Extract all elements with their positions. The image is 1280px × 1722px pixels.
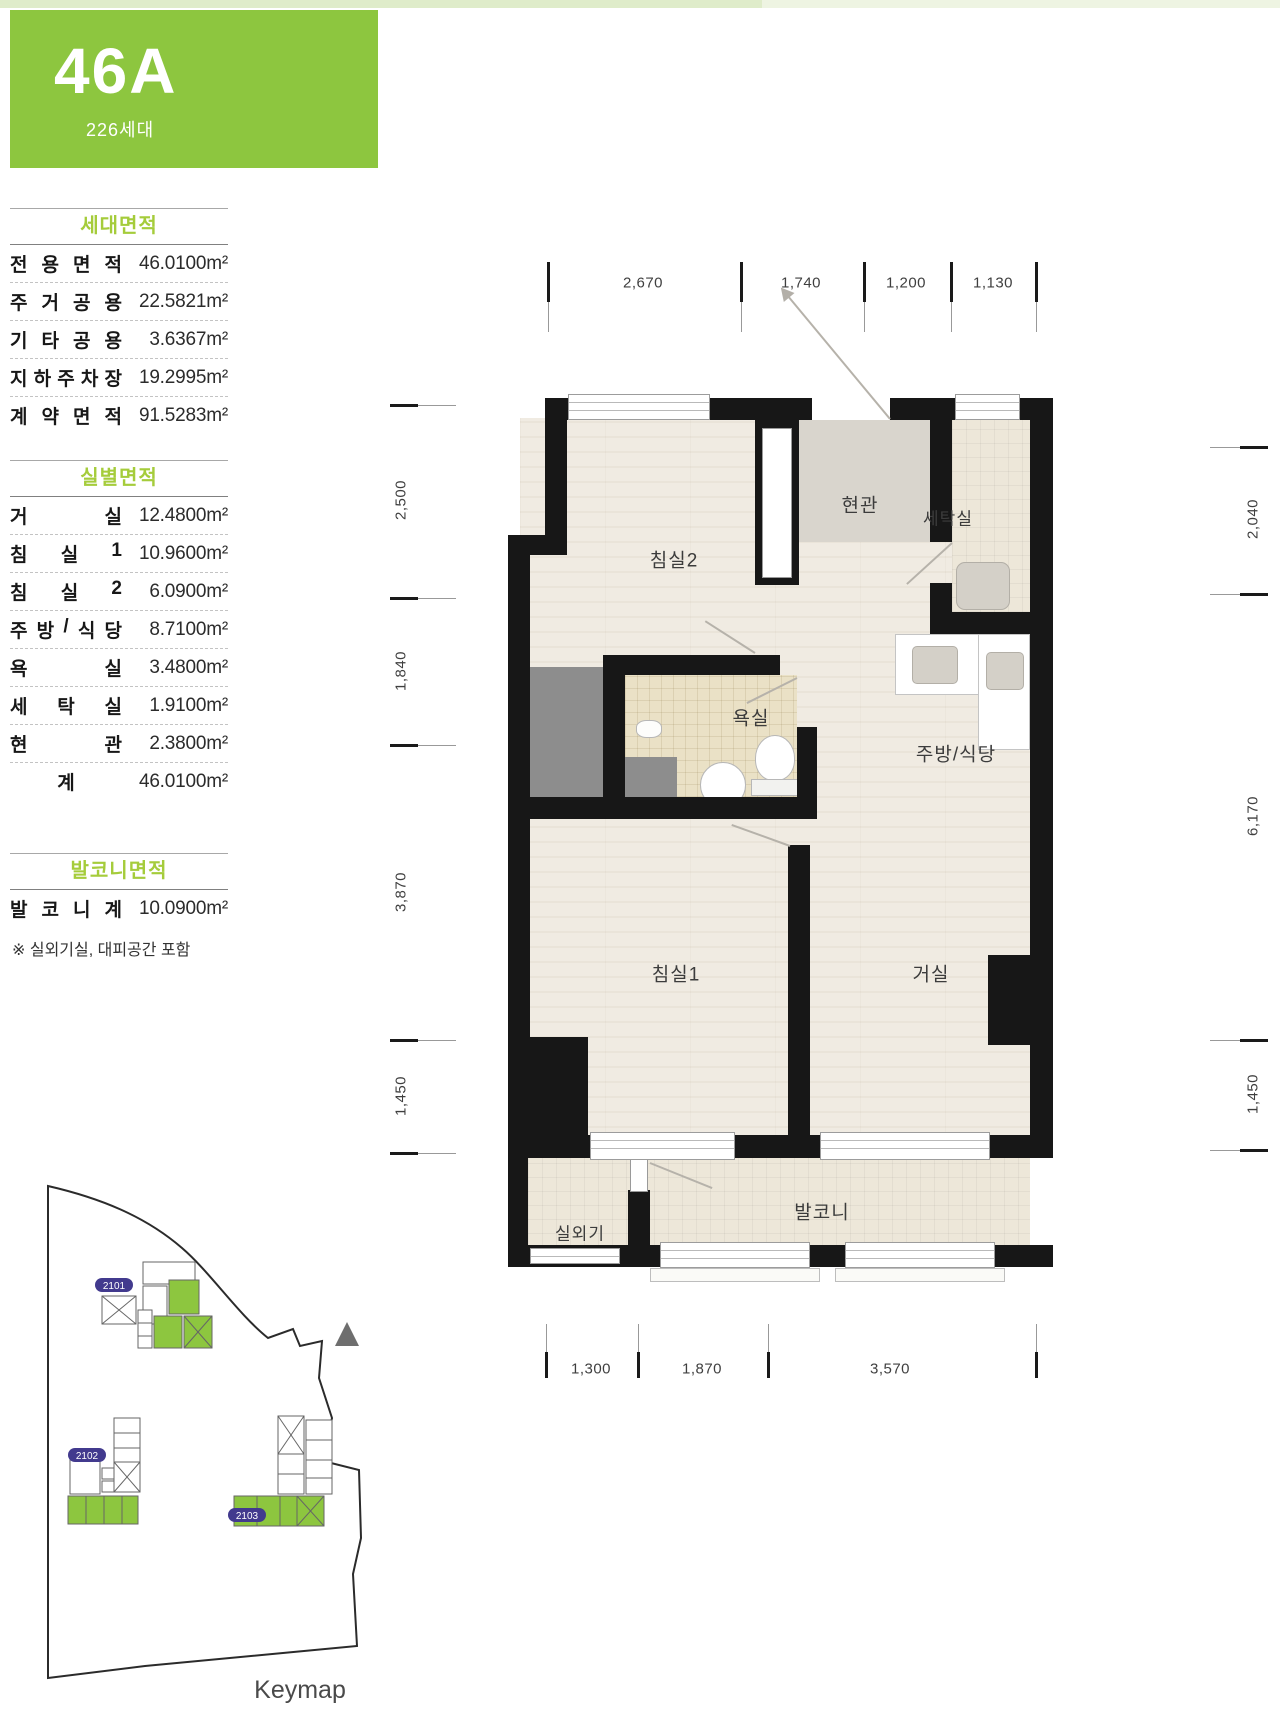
area-value: 46.0100m² [122, 771, 228, 793]
laundry-window [955, 394, 1020, 420]
keymap: 2101 2102 2103 Keymap [10, 1066, 390, 1716]
dimension-tick [637, 1352, 640, 1378]
dim-left-2: 1,840 [393, 651, 410, 691]
household-area-table: 세대면적 전용면적 46.0100m² 주거공용 22.5821m² 기타공용 … [10, 208, 228, 434]
area-value: 10.0900m² [122, 898, 228, 920]
wall-pier [988, 955, 1053, 1045]
unit-count: 226세대 [86, 116, 154, 142]
wall-pier [530, 1037, 588, 1137]
washer [956, 562, 1010, 610]
area-value: 91.5283m² [122, 405, 228, 427]
unit-type-code: 46A [54, 34, 177, 108]
area-label: 기타공용 [10, 326, 122, 353]
area-value: 46.0100m² [122, 253, 228, 275]
dimension-tick [390, 597, 418, 600]
shaft-area [520, 757, 677, 799]
area-label: 침실2 [10, 578, 122, 605]
page: 46A 226세대 세대면적 전용면적 46.0100m² 주거공용 22.58… [0, 0, 1280, 1722]
dim-right-2: 6,170 [1245, 796, 1262, 836]
table-row: 침실1 10.9600m² [10, 535, 228, 573]
area-note: ※ 실외기실, 대피공간 포함 [12, 936, 190, 960]
area-label: 주방/식당 [10, 616, 122, 643]
area-value: 1.9100m² [122, 695, 228, 717]
table-row: 계 46.0100m² [10, 763, 228, 800]
wall-bathroom [603, 655, 625, 800]
area-label: 주거공용 [10, 288, 122, 315]
area-value: 19.2995m² [122, 367, 228, 389]
area-label: 계 [10, 768, 122, 795]
unit-type-header: 46A 226세대 [10, 10, 378, 168]
badge-2101-label: 2101 [103, 1281, 126, 1292]
wall-room-divider [788, 845, 810, 1158]
area-label: 지하주차장 [10, 364, 122, 391]
dimension-tick [1240, 1149, 1268, 1152]
wall-bathroom [797, 727, 817, 797]
table-row: 주거공용 22.5821m² [10, 283, 228, 321]
area-value: 12.4800m² [122, 505, 228, 527]
building-2102 [68, 1418, 140, 1524]
wall [545, 398, 567, 555]
washbasin [636, 720, 662, 738]
entrance-floor [798, 420, 930, 542]
badge-2103-label: 2103 [236, 1511, 259, 1522]
area-value: 6.0900m² [122, 581, 228, 603]
badge-2102-label: 2102 [76, 1451, 99, 1462]
balcony-divider-door [630, 1158, 648, 1192]
area-value: 3.4800m² [122, 657, 228, 679]
room-label-kitchen: 주방/식당 [916, 740, 996, 767]
table-row: 발코니계 10.0900m² [10, 890, 228, 927]
dimension-tick [1240, 593, 1268, 596]
keymap-title: Keymap [254, 1676, 346, 1704]
table-row: 침실2 6.0900m² [10, 573, 228, 611]
room-label-living: 거실 [913, 960, 950, 987]
toilet-tank [751, 779, 799, 796]
area-value: 10.9600m² [122, 543, 228, 565]
dimension-tick [950, 262, 953, 302]
table-row: 계약면적 91.5283m² [10, 397, 228, 434]
table-row: 기타공용 3.6367m² [10, 321, 228, 359]
living-window [820, 1132, 990, 1160]
closet [762, 428, 792, 578]
building-2101 [102, 1262, 212, 1348]
dimension-tick [390, 744, 418, 747]
dimension-tick [390, 1152, 418, 1155]
area-label: 현관 [10, 730, 122, 757]
stove [986, 652, 1024, 690]
wall [508, 535, 530, 1158]
dimension-tick [547, 262, 550, 302]
table-title: 실별면적 [10, 461, 228, 497]
balcony-window-2 [845, 1242, 995, 1268]
area-label: 발코니계 [10, 895, 122, 922]
dim-left-4: 1,450 [393, 1076, 410, 1116]
table-row: 전용면적 46.0100m² [10, 245, 228, 283]
dim-top-1: 2,670 [623, 275, 663, 292]
table-row: 지하주차장 19.2995m² [10, 359, 228, 397]
ac-room-window [530, 1248, 620, 1264]
window-sill [650, 1268, 820, 1282]
area-label: 계약면적 [10, 402, 122, 429]
table-row: 거실 12.4800m² [10, 497, 228, 535]
table-row: 욕실 3.4800m² [10, 649, 228, 687]
dimension-tick [545, 1352, 548, 1378]
toilet [755, 735, 795, 781]
floor-plan: 침실2 현관 세탁실 욕실 주방/식당 침실1 거실 실외기 발코니 [500, 390, 1070, 1290]
top-accent-strip [0, 0, 762, 8]
table-title: 세대면적 [10, 209, 228, 245]
balcony-window-1 [660, 1242, 810, 1268]
dim-left-1: 2,500 [393, 480, 410, 520]
area-label: 욕실 [10, 654, 122, 681]
table-row: 주방/식당 8.7100m² [10, 611, 228, 649]
area-label: 세탁실 [10, 692, 122, 719]
dim-bottom-1: 1,300 [571, 1361, 611, 1378]
dim-top-3: 1,200 [886, 275, 926, 292]
area-value: 8.7100m² [122, 619, 228, 641]
room-label-laundry: 세탁실 [923, 505, 973, 530]
dimension-tick [390, 404, 418, 407]
room-label-bedroom1: 침실1 [652, 960, 701, 987]
north-arrow-icon [335, 1322, 359, 1346]
table-title: 발코니면적 [10, 854, 228, 890]
dim-top-4: 1,130 [973, 275, 1013, 292]
room-label-balcony: 발코니 [794, 1198, 849, 1225]
area-value: 2.3800m² [122, 733, 228, 755]
room-area-table: 실별면적 거실 12.4800m² 침실1 10.9600m² 침실2 6.09… [10, 460, 228, 800]
dimension-tick [767, 1352, 770, 1378]
area-value: 3.6367m² [122, 329, 228, 351]
dim-bottom-2: 1,870 [682, 1361, 722, 1378]
wall-balcony-divider [628, 1190, 650, 1248]
room-label-entrance: 현관 [842, 491, 879, 518]
dim-left-3: 3,870 [393, 872, 410, 912]
dimension-tick [863, 262, 866, 302]
room-label-ac-unit: 실외기 [555, 1220, 605, 1245]
dim-right-3: 1,450 [1245, 1074, 1262, 1114]
balcony-area-table: 발코니면적 발코니계 10.0900m² [10, 853, 228, 927]
table-row: 현관 2.3800m² [10, 725, 228, 763]
kitchen-sink [912, 646, 958, 684]
dimension-tick [740, 262, 743, 302]
wall-bathroom [508, 797, 817, 819]
area-value: 22.5821m² [122, 291, 228, 313]
bedroom1-window [590, 1132, 735, 1160]
area-label: 침실1 [10, 540, 122, 567]
top-accent-strip-light [762, 0, 1280, 8]
room-label-bedroom2: 침실2 [650, 546, 699, 573]
dimension-tick [390, 1039, 418, 1042]
dimension-tick [1035, 262, 1038, 302]
wall [945, 612, 1030, 634]
dimension-tick [1240, 446, 1268, 449]
window-sill [835, 1268, 1005, 1282]
dimension-tick [1240, 1039, 1268, 1042]
wall [930, 583, 952, 634]
table-row: 세탁실 1.9100m² [10, 687, 228, 725]
bedroom2-window [568, 394, 710, 420]
area-label: 거실 [10, 502, 122, 529]
wall-bathroom [605, 655, 780, 675]
dim-bottom-3: 3,570 [870, 1361, 910, 1378]
dim-right-1: 2,040 [1245, 499, 1262, 539]
dimension-tick [1035, 1352, 1038, 1378]
entrance-opening [812, 398, 890, 420]
room-label-bathroom: 욕실 [733, 704, 770, 731]
area-label: 전용면적 [10, 250, 122, 277]
